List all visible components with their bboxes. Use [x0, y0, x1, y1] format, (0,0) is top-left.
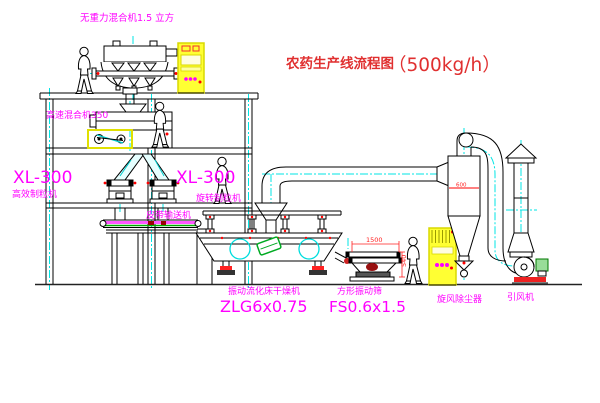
- pesticide-production-line-diagram: 无重力混合机1.5 立方 农药生产线流程图 （500kg/h） 高速混合机350…: [0, 0, 600, 403]
- label-screen-model: FS0.6x1.5: [329, 298, 406, 316]
- label-granulator-left-model: XL-300: [13, 168, 72, 188]
- label-cyclone: 旋风除尘器: [437, 293, 482, 305]
- worker-roof: [76, 47, 93, 93]
- label-gravity-mixer: 无重力混合机1.5 立方: [80, 12, 174, 24]
- dryer-feet: [217, 261, 327, 275]
- dimension-screen-height: 540: [400, 255, 408, 267]
- exhaust-duct: [255, 162, 449, 233]
- gravity-mixer: [92, 41, 178, 104]
- diagram-title: 农药生产线流程图: [285, 55, 394, 72]
- label-screen-name: 方形振动筛: [337, 285, 382, 297]
- label-granulator-left-name: 高效制粒机: [12, 188, 57, 200]
- label-belt-conveyor: 皮带输送机: [146, 209, 191, 221]
- vibrating-screen: [346, 241, 405, 281]
- dimension-screen-length: 1500: [366, 236, 383, 244]
- y-splitter-chute: [114, 154, 169, 180]
- diagram-title-capacity: （500kg/h）: [388, 55, 501, 76]
- label-high-speed-mixer: 高速混合机350: [46, 109, 108, 121]
- dimension-cyclone-marking: 600: [456, 183, 467, 189]
- control-cabinet-right: [429, 228, 456, 285]
- label-granulator-right-model: XL-300: [176, 168, 235, 188]
- label-granulator-right-name: 旋转制粒机: [196, 192, 241, 204]
- label-fan: 引风机: [507, 291, 534, 303]
- label-dryer-model: ZLG6x0.75: [220, 297, 308, 316]
- induced-draft-fan: [512, 257, 548, 283]
- granulator-left: [104, 180, 137, 220]
- control-cabinet-top: [178, 43, 204, 93]
- label-dryer-name: 振动流化床干燥机: [228, 285, 300, 297]
- belt-conveyor: [100, 220, 212, 284]
